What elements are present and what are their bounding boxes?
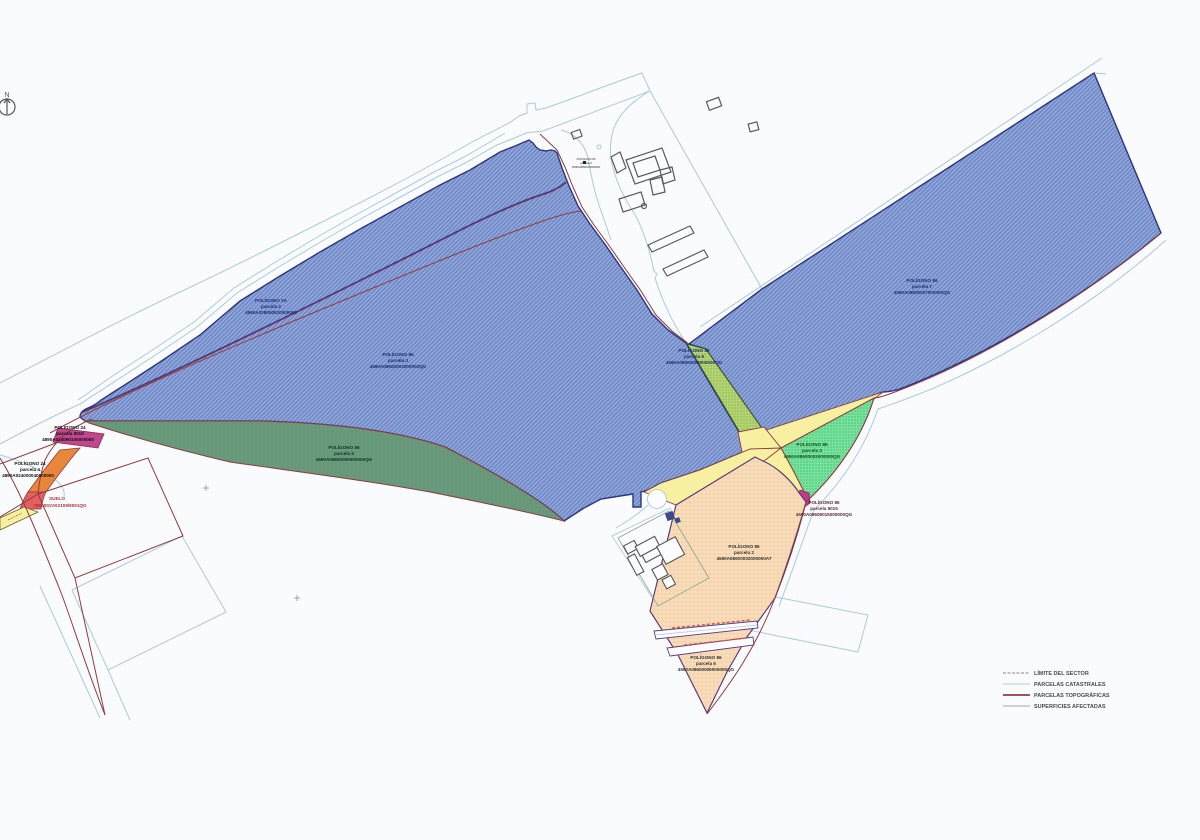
- svg-text:4890A024000040000000: 4890A024000040000000: [2, 473, 54, 478]
- svg-text:POLÍGONO 24: POLÍGONO 24: [54, 423, 86, 430]
- svg-text:POLÍGONO 86: POLÍGONO 86: [690, 653, 722, 660]
- svg-text:4590A08600003000000QG: 4590A08600003000000QG: [784, 454, 841, 459]
- svg-text:POLÍGONO 2A: POLÍGONO 2A: [255, 296, 288, 303]
- svg-text:POLÍGONO 86: POLÍGONO 86: [906, 276, 938, 283]
- svg-text:4590A08600006000000QG: 4590A08600006000000QG: [678, 667, 735, 672]
- svg-text:parcela 2: parcela 2: [734, 550, 754, 555]
- svg-text:4590A08600007000000QG: 4590A08600007000000QG: [894, 290, 951, 295]
- svg-text:POLÍGONO 86: POLÍGONO 86: [796, 440, 828, 447]
- svg-text:parcela 9015: parcela 9015: [810, 506, 838, 511]
- svg-text:LÍMITE DEL SECTOR: LÍMITE DEL SECTOR: [1034, 669, 1089, 677]
- svg-text:SUPERFICIES AFECTADAS: SUPERFICIES AFECTADAS: [1034, 704, 1106, 710]
- svg-text:7890001VK2109/9001QG: 7890001VK2109/9001QG: [33, 503, 87, 508]
- svg-text:parcela 9010: parcela 9010: [56, 431, 84, 436]
- svg-text:POLÍGONO 86: POLÍGONO 86: [382, 350, 414, 357]
- svg-text:PARCELAS TOPOGRÁFICAS: PARCELAS TOPOGRÁFICAS: [1034, 692, 1110, 699]
- svg-text:N: N: [4, 92, 9, 99]
- svg-text:parcela 3: parcela 3: [802, 448, 822, 453]
- svg-text:SUELO: SUELO: [49, 496, 65, 501]
- svg-text:4590A08600002000000AT: 4590A08600002000000AT: [716, 556, 771, 561]
- svg-text:4590A08600005000000QG: 4590A08600005000000QG: [316, 457, 373, 462]
- svg-text:POLÍGONO 24: POLÍGONO 24: [14, 459, 46, 466]
- svg-text:parcela 3: parcela 3: [388, 358, 408, 363]
- svg-text:4890A024090100000000: 4890A024090100000000: [42, 437, 94, 442]
- svg-text:parcela 5: parcela 5: [334, 451, 354, 456]
- svg-text:4590A08600003000000QG: 4590A08600003000000QG: [370, 364, 427, 369]
- svg-text:PARCELAS CATASTRALES: PARCELAS CATASTRALES: [1034, 682, 1106, 688]
- svg-text:parcela 2: parcela 2: [261, 304, 281, 309]
- svg-text:4590A028000020000000: 4590A028000020000000: [245, 310, 297, 315]
- svg-text:parcela 8: parcela 8: [684, 354, 704, 359]
- svg-text:POLÍGONO 86: POLÍGONO 86: [328, 443, 360, 450]
- svg-text:parcela 7: parcela 7: [912, 284, 932, 289]
- svg-text:parcela 6: parcela 6: [696, 661, 716, 666]
- svg-text:POLÍGONO 86: POLÍGONO 86: [678, 346, 710, 353]
- svg-text:4590A08600008000000QG: 4590A08600008000000QG: [666, 360, 723, 365]
- svg-text:4590A0860000400000: 4590A0860000400000: [572, 165, 601, 169]
- svg-text:4590A08609015000000QG: 4590A08609015000000QG: [796, 512, 853, 517]
- svg-text:parcela 4: parcela 4: [20, 467, 40, 472]
- svg-text:POLÍGONO 86: POLÍGONO 86: [728, 542, 760, 549]
- svg-text:POLÍGONO 86: POLÍGONO 86: [808, 498, 840, 505]
